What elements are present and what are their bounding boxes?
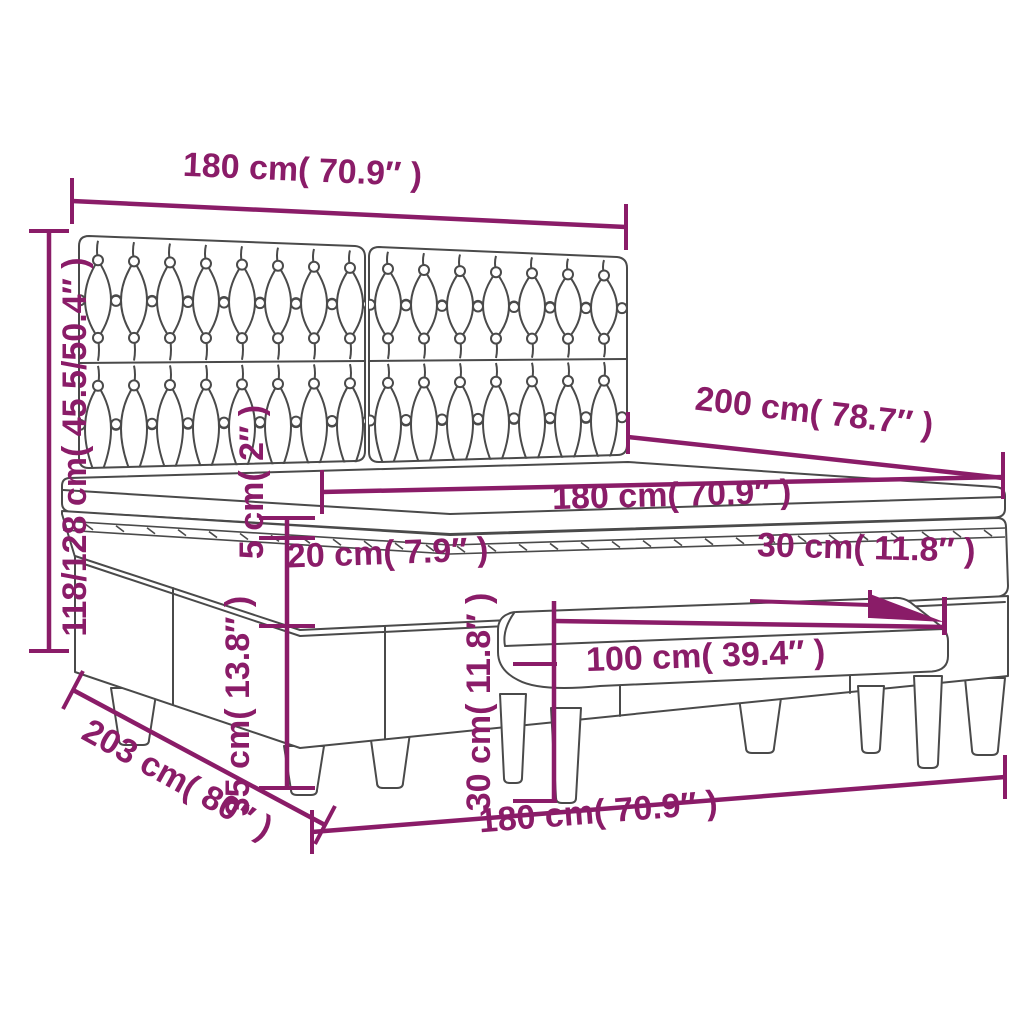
dim-total-height-label: 118/128 cm( 45.5/50.4″ ) bbox=[56, 257, 94, 636]
dim-mattress-thickness-label: 20 cm( 7.9″ ) bbox=[286, 531, 489, 576]
dim-mattress-width-label: 180 cm( 70.9″ ) bbox=[552, 473, 792, 517]
dim-bed-width-bottom-label: 180 cm( 70.9″ ) bbox=[477, 784, 719, 841]
dim-bench-depth-label: 30 cm( 11.8″ ) bbox=[757, 526, 976, 570]
dim-bench-height-label: 30 cm( 11.8″ ) bbox=[460, 593, 498, 812]
headboard-right-panel bbox=[369, 247, 627, 462]
dim-headboard-width: 180 cm( 70.9″ ) bbox=[72, 146, 626, 250]
dim-bed-length-label: 200 cm( 78.7″ ) bbox=[693, 380, 935, 445]
bed-dimension-drawing: 180 cm( 70.9″ ) 118/128 cm( 45.5/50.4″ )… bbox=[0, 0, 1024, 1024]
dimension-diagram: 180 cm( 70.9″ ) 118/128 cm( 45.5/50.4″ )… bbox=[0, 0, 1024, 1024]
dim-headboard-width-label: 180 cm( 70.9″ ) bbox=[182, 146, 423, 194]
dim-bed-width-bottom: 180 cm( 70.9″ ) bbox=[312, 755, 1005, 854]
dim-topper-thickness-label: 5 cm( 2″ ) bbox=[233, 405, 271, 559]
headboard bbox=[75, 236, 627, 481]
dim-total-height: 118/128 cm( 45.5/50.4″ ) bbox=[29, 231, 94, 651]
